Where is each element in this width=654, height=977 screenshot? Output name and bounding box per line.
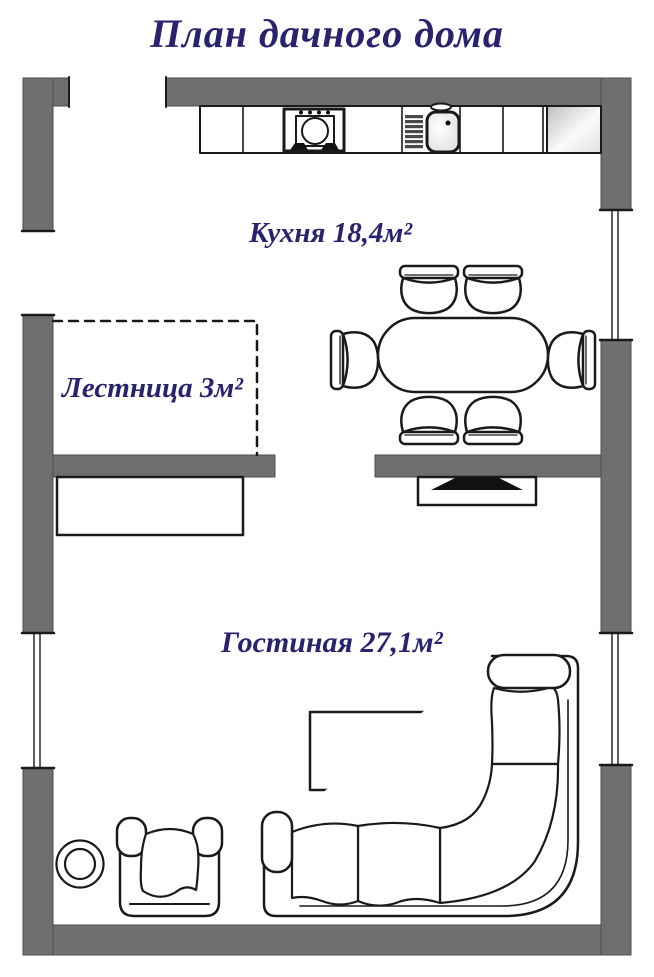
dining-chair [400,266,458,313]
window-left-living [22,633,54,768]
tv-stand-group [418,477,536,505]
wall-left [23,78,53,955]
dining-group [331,266,595,444]
dining-chair [464,397,522,444]
sideboard [57,477,243,535]
dining-table [378,318,548,392]
dining-chair [331,331,378,389]
kitchen-counter [200,106,601,153]
kitchen-label: Кухня 18,4м² [248,217,413,249]
window-left-kitchen [22,231,54,315]
living-label: Гостиная 27,1м² [220,626,444,659]
dining-chair [464,266,522,313]
staircase-label: Лестница 3м² [61,372,244,404]
round-side-table [57,841,104,888]
dining-chair [400,397,458,444]
dining-chair [548,331,595,389]
wall-middle-right [375,455,601,477]
window-right-living [600,633,632,765]
stove-icon [284,109,344,151]
wall-middle-left [53,455,275,477]
corner-cabinet [547,106,601,153]
floor-plan-page: План дачного дома [0,0,654,977]
window-right-kitchen [600,210,632,340]
wall-bottom [23,925,631,955]
floor-plan: Кухня 18,4м² Лестница 3м² Гостиная 27,1м… [0,0,654,977]
door-top-opening [69,77,166,107]
armchair [117,818,222,916]
